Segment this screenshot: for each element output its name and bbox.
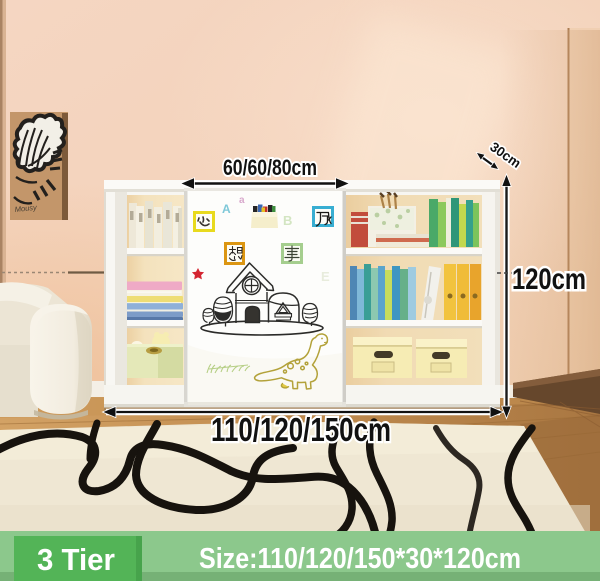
svg-text:a: a <box>239 195 245 206</box>
svg-text:3 Tier: 3 Tier <box>37 542 115 577</box>
svg-text:B: B <box>283 213 292 228</box>
svg-text:A: A <box>222 202 231 216</box>
svg-text:110/120/150cm: 110/120/150cm <box>211 411 391 448</box>
svg-text:60/60/80cm: 60/60/80cm <box>223 155 317 180</box>
svg-text:E: E <box>321 269 330 284</box>
svg-text:Size:110/120/150*30*120cm: Size:110/120/150*30*120cm <box>199 543 521 575</box>
svg-text:120cm: 120cm <box>512 263 586 296</box>
